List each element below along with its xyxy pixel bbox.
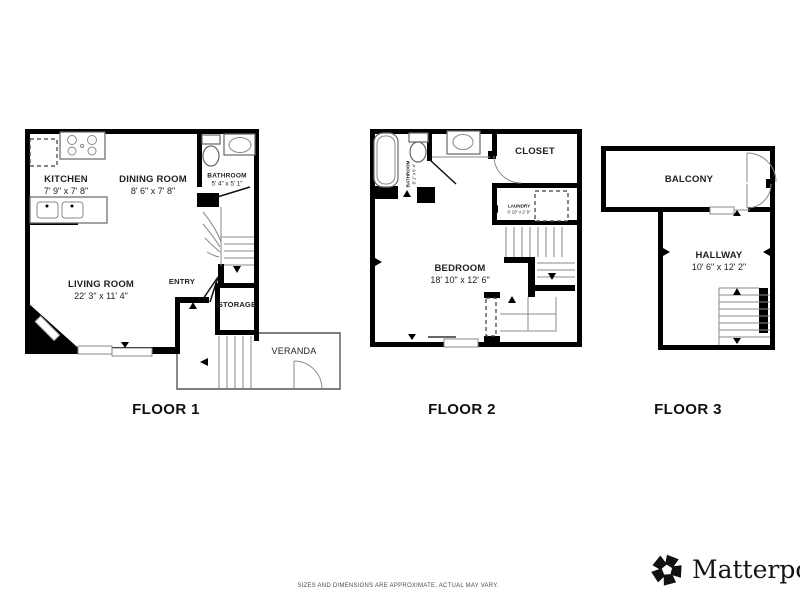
- stairs-up-arrow-icon: [508, 296, 516, 303]
- veranda-stairs-arrow-icon: [200, 358, 208, 366]
- veranda-door-arc: [294, 361, 322, 389]
- room-label-storage: STORAGE: [218, 300, 256, 310]
- wall-tick-icon: [375, 258, 382, 266]
- bathroom-sink-icon: [447, 131, 480, 154]
- floor3-title: FLOOR 3: [654, 401, 722, 418]
- stove-icon: [60, 132, 105, 159]
- floor1-title: FLOOR 1: [132, 401, 200, 418]
- closet-door-arc: [494, 156, 521, 183]
- room-label-bathroom-f1: BATHROOM 5' 4" x 5' 1": [207, 173, 246, 190]
- stairs-down-arrow-icon: [233, 266, 241, 273]
- bathroom-door-tick-icon: [403, 190, 411, 197]
- bathroom-sink-icon: [224, 134, 255, 155]
- washer-dryer-icon: [535, 191, 568, 221]
- room-label-dining-room: DINING ROOM 8' 6" x 7' 8": [119, 174, 187, 198]
- bathtub-icon: [374, 133, 398, 187]
- room-label-veranda: VERANDA: [272, 346, 317, 358]
- brand-wordmark: Matterport: [692, 555, 800, 584]
- wall-tick-icon: [663, 248, 670, 256]
- disclaimer-text: SIZES AND DIMENSIONS ARE APPROXIMATE, AC…: [297, 583, 498, 589]
- matterport-logo: Matterport®: [649, 552, 800, 588]
- stairs-up-arrow-icon: [733, 288, 741, 295]
- wall-tick-icon: [763, 248, 770, 256]
- balcony-hallway-window: [710, 207, 750, 216]
- veranda-structure: [177, 333, 340, 389]
- floor1-stairs: [203, 207, 254, 273]
- room-label-hallway: HALLWAY 10' 6" x 12' 2": [692, 250, 746, 274]
- floor2-plan: [370, 129, 582, 347]
- floor2-title: FLOOR 2: [428, 401, 496, 418]
- bathroom-door-swing: [430, 160, 456, 184]
- kitchen-sink-icon: [30, 197, 107, 223]
- room-label-bathroom-f2: BATHROOM 8' 1" x 6' 4": [405, 161, 416, 188]
- room-label-entry: ENTRY: [169, 277, 195, 287]
- room-label-balcony: BALCONY: [665, 174, 713, 186]
- toilet-icon: [409, 133, 428, 162]
- room-label-closet: CLOSET: [515, 146, 555, 158]
- room-label-bedroom: BEDROOM 18' 10" x 12' 6": [430, 263, 489, 287]
- toilet-icon: [202, 135, 220, 166]
- stairs-down-arrow-icon: [733, 338, 741, 344]
- room-label-kitchen: KITCHEN 7' 9" x 7' 8": [44, 174, 88, 198]
- matterport-pinwheel-icon: [649, 552, 685, 588]
- entry-door-tick-icon: [189, 302, 197, 309]
- floor1-walls: [25, 129, 259, 354]
- floorplan-canvas: KITCHEN 7' 9" x 7' 8" DINING ROOM 8' 6" …: [0, 0, 800, 600]
- window-tick-icon: [408, 334, 416, 340]
- room-label-living-room: LIVING ROOM 22' 3" x 11' 4": [68, 279, 134, 303]
- closet-dashed-door: [486, 298, 496, 336]
- room-label-laundry: LAUNDRY 6' 10" x 2' 9": [508, 203, 531, 214]
- refrigerator-icon: [30, 139, 57, 166]
